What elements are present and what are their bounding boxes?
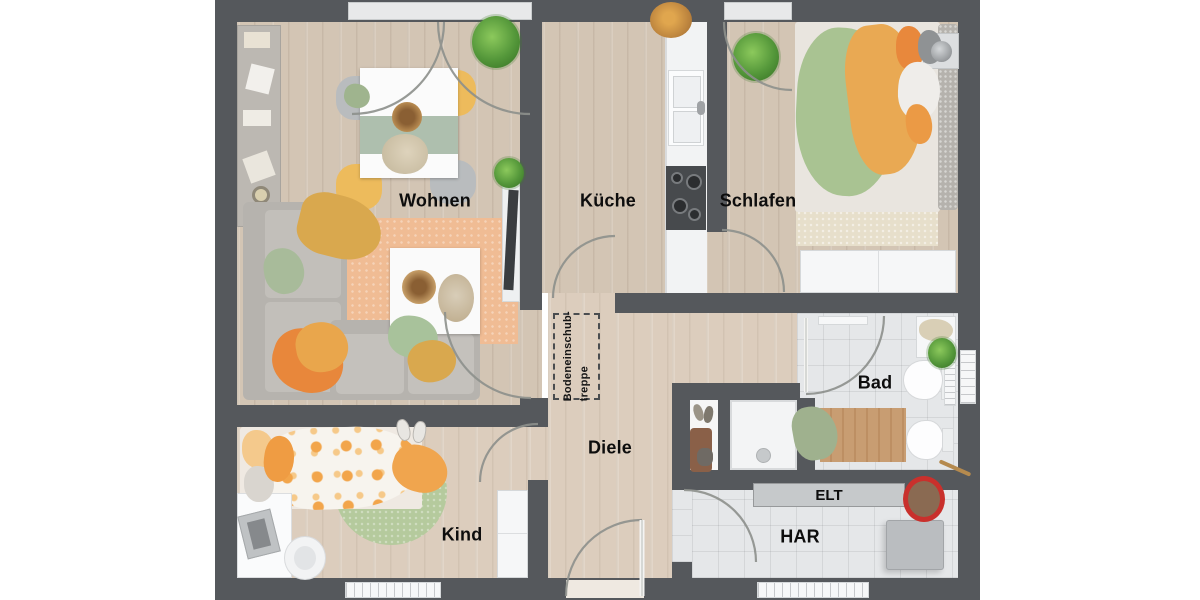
desk-chair [284,536,326,580]
dried-grass [438,274,474,322]
kitchen-counter [665,22,707,293]
room-label-wohnen: Wohnen [399,191,471,212]
room-label-kind: Kind [442,525,483,546]
wall-segment [215,0,980,22]
books [244,32,270,48]
faucet [697,101,705,115]
wall-segment [215,0,237,600]
har-floor [672,490,692,562]
flower-vase [382,134,428,174]
bidet [906,418,956,462]
elt-label: ELT [815,487,842,504]
burner [688,208,701,221]
room-label-diele: Diele [588,438,632,459]
potted-plant [494,158,524,188]
wall-segment [520,22,542,310]
door-gap-floor [528,427,548,480]
potted-plant [733,33,779,81]
cooktop [666,166,706,230]
red-bucket [903,476,945,522]
sink-basin [673,111,701,143]
wall-segment [672,400,690,480]
books [242,150,275,183]
wall-segment [672,383,800,400]
window-radiator-kind [345,582,441,598]
room-label-har: HAR [780,527,820,548]
table-lamp [931,41,952,62]
room-label-kueche: Küche [580,191,636,212]
books [243,110,271,126]
entrance-door-gap [566,580,644,598]
room-label-schlafen: Schlafen [720,191,797,212]
bookshelf [237,25,281,227]
potted-plant [472,16,520,68]
window-radiator-bad [960,350,976,404]
wall-segment [718,400,730,478]
burner [672,198,688,214]
wall-segment [528,480,548,578]
wall-segment [615,293,958,313]
bidet-faucet [942,428,954,452]
monitor-screen [247,518,271,550]
potted-plant [928,338,956,368]
fruit-bowl [650,2,692,38]
towel-beige [919,319,953,341]
wall-segment [958,0,980,600]
books [245,63,275,94]
attic-stairs-box: Bodeneinschub- treppe [553,313,600,400]
terrace-door-top [724,2,792,20]
attic-stairs-label: Bodeneinschub- treppe [560,311,593,401]
door-gap-floor [520,310,542,398]
window-radiator-har [757,582,869,598]
wardrobe [800,250,956,293]
burner [671,172,683,184]
bag [697,448,713,466]
chair-seat [294,546,316,570]
elt-panel: ELT [753,483,905,507]
diele-floor [672,313,797,383]
door-gap-floor [705,232,727,293]
decor-plate [402,270,436,304]
kitchen-sink [668,70,704,146]
burner [686,174,702,190]
wall-segment [215,405,548,427]
wardrobe [497,490,528,578]
shower-drain [756,448,771,463]
storage-box [886,520,944,570]
wall-segment [672,562,692,578]
towel-rail [818,316,868,325]
bidet-bowl [906,420,944,460]
dining-table [360,68,458,178]
floor-plan: ELT Bodeneinschub- treppe Wohnen Küche [0,0,1200,600]
decor-bowl [392,102,422,132]
room-label-bad: Bad [858,373,893,394]
